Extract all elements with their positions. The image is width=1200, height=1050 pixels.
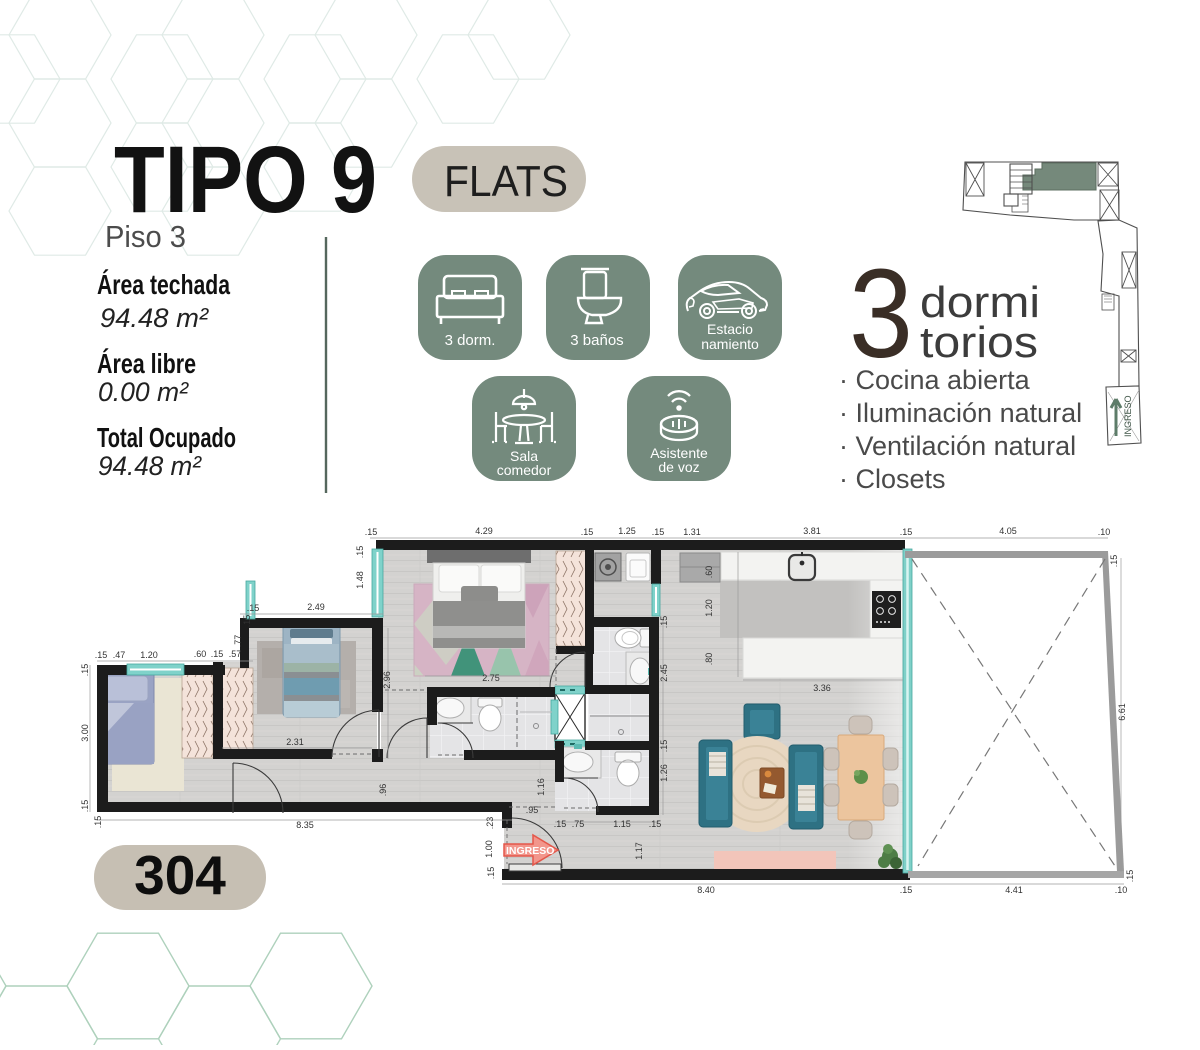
svg-text:94.48 m²: 94.48 m² [100,303,209,333]
svg-text:94.48 m²: 94.48 m² [98,451,202,481]
svg-text:.15: .15 [242,615,252,628]
svg-text:.80: .80 [704,653,714,666]
svg-text:2.45: 2.45 [659,664,669,682]
svg-text:4.05: 4.05 [999,526,1017,536]
svg-text:INGRESO: INGRESO [1123,395,1133,437]
svg-text:de voz: de voz [658,459,699,475]
svg-text:.15: .15 [1125,870,1135,883]
svg-text:3.00: 3.00 [80,724,90,742]
svg-text:Área libre: Área libre [97,348,196,379]
svg-text:1.20: 1.20 [704,599,714,617]
svg-text:.15: .15 [93,816,103,829]
svg-text:4.29: 4.29 [475,526,493,536]
svg-text:1.15: 1.15 [613,819,631,829]
svg-text:.15: .15 [900,527,913,537]
svg-text:FLATS: FLATS [444,157,568,206]
svg-text:6.61: 6.61 [1117,703,1127,721]
svg-text:2.49: 2.49 [307,602,325,612]
svg-text:.96: .96 [378,784,388,797]
svg-text:1.25: 1.25 [618,526,636,536]
svg-text:.95: .95 [526,805,539,815]
svg-text:.15: .15 [365,527,378,537]
svg-text:.23: .23 [485,817,495,830]
svg-text:.15: .15 [80,664,90,677]
svg-text:· Cocina abierta: · Cocina abierta [839,365,1031,395]
svg-text:.10: .10 [1098,527,1111,537]
svg-text:.60: .60 [194,649,207,659]
svg-text:1.48: 1.48 [355,571,365,589]
svg-text:.15: .15 [554,819,567,829]
svg-text:· Iluminación natural: · Iluminación natural [839,398,1082,428]
svg-text:TIPO 9: TIPO 9 [114,127,377,233]
svg-text:1.20: 1.20 [140,650,158,660]
svg-text:.15: .15 [355,546,365,559]
svg-text:.15: .15 [581,527,594,537]
svg-text:1.17: 1.17 [634,842,644,860]
svg-text:.15: .15 [1109,555,1119,568]
svg-text:.15: .15 [652,527,665,537]
svg-text:Estacio: Estacio [707,321,753,337]
svg-text:4.41: 4.41 [1005,885,1023,895]
svg-text:.15: .15 [80,800,90,813]
svg-text:.15: .15 [900,885,913,895]
svg-text:8.40: 8.40 [697,885,715,895]
svg-text:· Closets: · Closets [839,464,946,494]
svg-text:Total Ocupado: Total Ocupado [97,422,236,453]
svg-text:.15: .15 [659,740,669,753]
svg-text:2.31: 2.31 [286,737,304,747]
svg-text:.15: .15 [247,603,260,613]
svg-text:.10: .10 [1115,885,1128,895]
svg-text:.15: .15 [649,819,662,829]
svg-text:Área techada: Área techada [97,269,230,300]
svg-text:8.35: 8.35 [296,820,314,830]
svg-text:3: 3 [849,243,913,384]
svg-text:1.16: 1.16 [536,778,546,796]
svg-text:torios: torios [920,318,1038,367]
svg-text:Piso 3: Piso 3 [105,219,186,254]
svg-text:1.31: 1.31 [683,527,701,537]
svg-text:3.36: 3.36 [813,683,831,693]
svg-text:.60: .60 [704,566,714,579]
svg-text:· Ventilación natural: · Ventilación natural [839,431,1076,461]
svg-text:.77: .77 [233,635,243,648]
svg-text:2.75: 2.75 [482,673,500,683]
svg-text:1.00: 1.00 [484,840,494,858]
svg-text:0.00 m²: 0.00 m² [98,377,189,407]
svg-text:3.81: 3.81 [803,526,821,536]
svg-text:304: 304 [134,844,226,906]
svg-text:.57: .57 [229,649,242,659]
svg-text:.15: .15 [486,867,496,880]
svg-text:.15: .15 [211,649,224,659]
svg-text:.75: .75 [572,819,585,829]
svg-text:.15: .15 [659,616,669,629]
svg-text:2.96: 2.96 [382,671,392,689]
svg-text:3 dorm.: 3 dorm. [445,332,496,349]
svg-text:INGRESO: INGRESO [506,845,554,857]
svg-text:namiento: namiento [701,336,759,352]
svg-text:.47: .47 [113,650,126,660]
svg-text:.15: .15 [95,650,108,660]
svg-text:comedor: comedor [497,462,552,478]
svg-text:1.26: 1.26 [659,764,669,782]
svg-text:3 baños: 3 baños [570,332,623,349]
